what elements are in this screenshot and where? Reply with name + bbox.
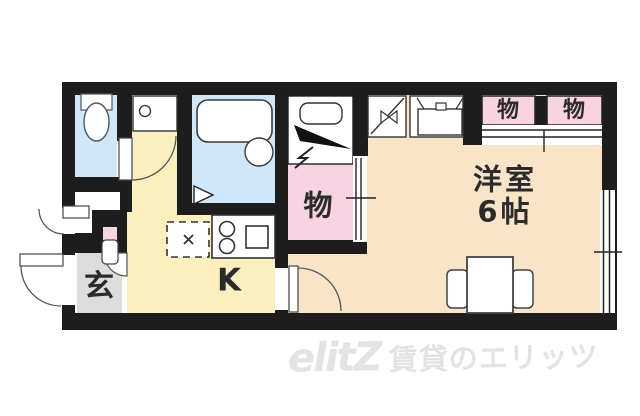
room-size: 6帖: [473, 196, 537, 228]
storage-label-2: 物: [563, 100, 585, 122]
entrance-door-icon: [20, 254, 63, 306]
stove-icon: [212, 215, 275, 258]
kitchen-sink-icon: [167, 222, 209, 257]
room-label: 洋室 6帖: [473, 164, 537, 229]
kitchen-room-door-opening: [275, 268, 288, 310]
washer-pan-icon: [410, 96, 463, 137]
entrance-label: 玄: [84, 272, 114, 302]
kitchen-label: K: [217, 266, 241, 297]
room-name: 洋室: [473, 164, 537, 196]
watermark: elitZ賃貸のエリッツ: [288, 330, 599, 381]
closet-label: 物: [303, 192, 332, 221]
washbasin-icon: [133, 96, 177, 131]
watermark-text: 賃貸のエリッツ: [388, 339, 599, 377]
washer-faucet-icon: [368, 96, 406, 137]
table-icon: [467, 257, 513, 313]
utility-box-icon: [102, 227, 118, 264]
entrance-door-opening: [62, 255, 75, 305]
floorplan-image: 玄 K 物 物 物 洋室 6帖 elitZ賃貸のエリッツ: [0, 0, 640, 416]
storage-label-1: 物: [497, 100, 519, 122]
watermark-logo: elitZ: [288, 334, 381, 382]
